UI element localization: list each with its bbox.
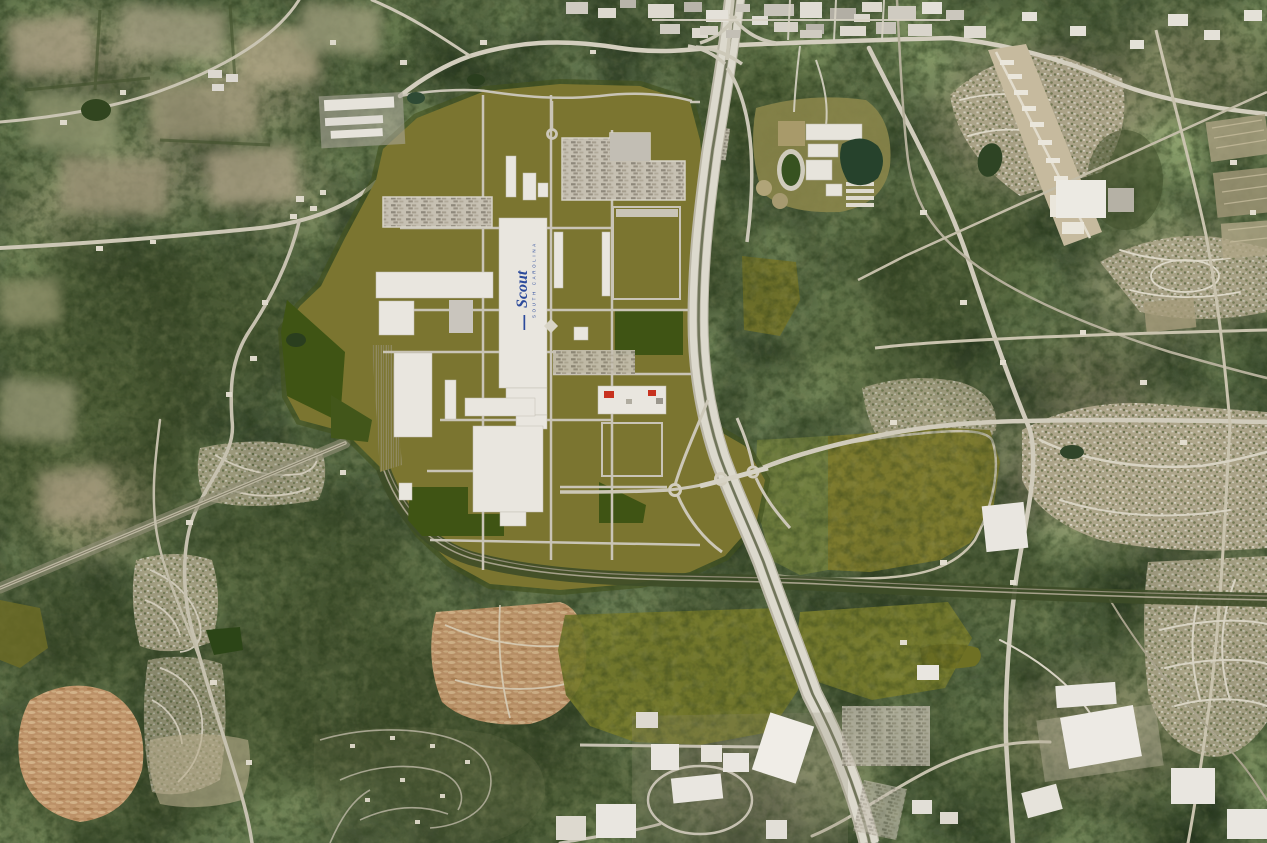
svg-text:SOUTH CAROLINA: SOUTH CAROLINA [532,241,537,318]
svg-text:Scout: Scout [514,270,531,308]
